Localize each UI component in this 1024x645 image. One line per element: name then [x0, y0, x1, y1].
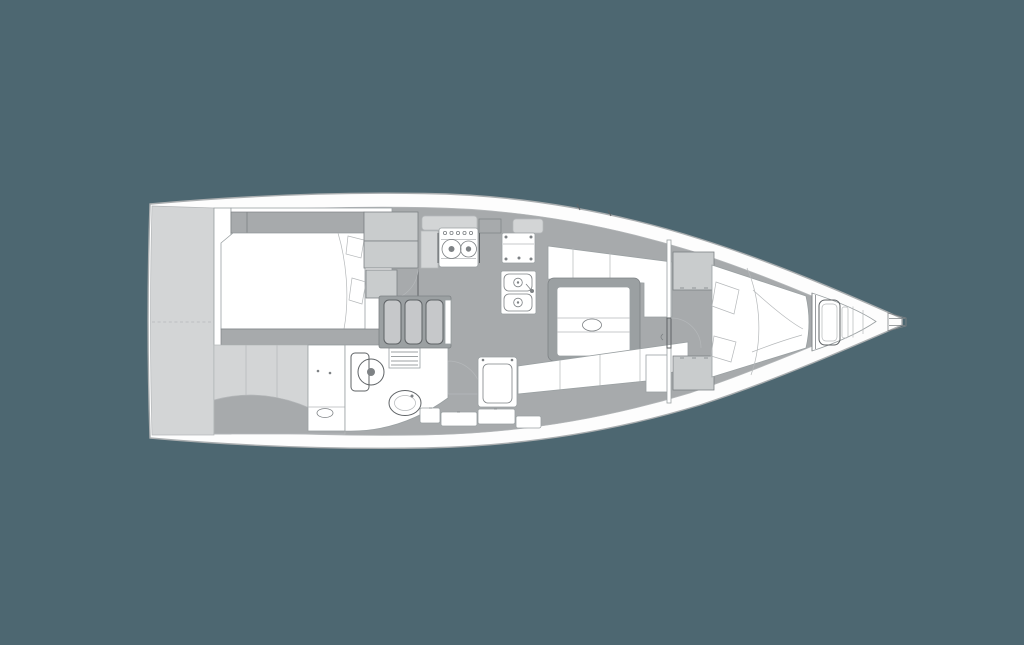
aft-berth [221, 233, 365, 329]
bulkhead-lower [667, 348, 671, 403]
aft-berth-foot-band [221, 329, 392, 345]
bulkhead-upper [667, 240, 671, 318]
transom-panel [151, 206, 215, 435]
steps-landing [445, 300, 451, 344]
canvas [0, 0, 1024, 645]
locker-door-panel [308, 345, 345, 431]
aft-cabin-top-cabinets [231, 212, 364, 233]
galley-sink [501, 271, 536, 314]
step-tread-2 [405, 300, 422, 344]
hanging-lockers [214, 345, 345, 434]
galley-top-cabinet [479, 219, 501, 233]
step-tread-3 [426, 300, 443, 344]
toilet-drain [367, 368, 375, 376]
aft-wardrobe-upper [364, 212, 418, 241]
deck-hatch-port-2 [513, 219, 543, 233]
companionway-steps [379, 296, 451, 348]
stove [438, 228, 480, 267]
table-top [557, 287, 630, 356]
aft-wardrobe-lower [364, 241, 418, 268]
basin-faucet [411, 395, 414, 398]
saloon-table [548, 278, 640, 361]
aft-locker-small [366, 270, 397, 298]
seat-module [478, 357, 517, 407]
galley-side-locker [421, 231, 438, 268]
boat-floor-plan [0, 0, 1024, 645]
refrigerator-counter [502, 233, 535, 263]
step-tread-1 [384, 300, 401, 344]
settee-end-cabinet [646, 355, 668, 392]
shower-grating [389, 348, 420, 368]
